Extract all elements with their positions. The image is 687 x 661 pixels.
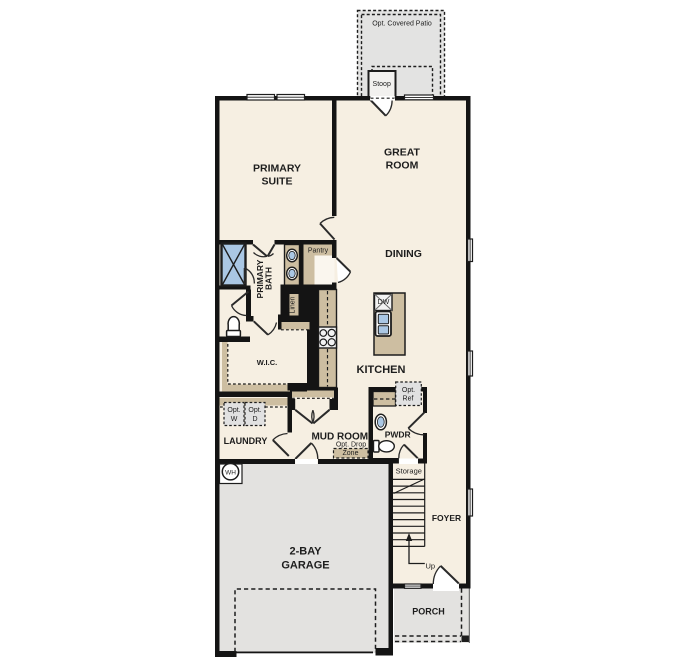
svg-text:SUITE: SUITE bbox=[262, 176, 293, 188]
svg-text:W.I.C.: W.I.C. bbox=[257, 358, 277, 367]
svg-text:GREAT: GREAT bbox=[384, 147, 421, 159]
svg-text:Opt. Covered Patio: Opt. Covered Patio bbox=[372, 20, 432, 27]
svg-text:2-BAY: 2-BAY bbox=[290, 546, 323, 558]
svg-text:KITCHEN: KITCHEN bbox=[357, 364, 406, 376]
svg-text:Zone: Zone bbox=[343, 450, 359, 457]
svg-text:Opt. Drop: Opt. Drop bbox=[336, 441, 366, 448]
svg-text:BATH: BATH bbox=[263, 267, 273, 290]
svg-text:ROOM: ROOM bbox=[386, 160, 419, 172]
svg-text:D: D bbox=[252, 416, 257, 423]
svg-text:PWDR: PWDR bbox=[385, 430, 411, 440]
svg-text:Storage: Storage bbox=[396, 467, 422, 476]
svg-text:FOYER: FOYER bbox=[432, 513, 461, 523]
svg-text:Opt.: Opt. bbox=[227, 407, 240, 414]
svg-text:WH: WH bbox=[225, 470, 236, 477]
svg-text:DW: DW bbox=[378, 299, 390, 306]
svg-text:GARAGE: GARAGE bbox=[281, 560, 329, 572]
svg-text:DINING: DINING bbox=[385, 248, 422, 260]
svg-text:PORCH: PORCH bbox=[412, 607, 445, 617]
svg-text:PRIMARY: PRIMARY bbox=[253, 163, 301, 175]
svg-text:Up: Up bbox=[426, 562, 436, 571]
svg-text:Opt.: Opt. bbox=[402, 387, 415, 394]
svg-text:LAUNDRY: LAUNDRY bbox=[224, 436, 268, 446]
svg-text:Stoop: Stoop bbox=[373, 81, 391, 88]
svg-text:W: W bbox=[231, 416, 238, 423]
svg-text:Opt.: Opt. bbox=[248, 407, 261, 414]
svg-text:Linen: Linen bbox=[290, 296, 297, 313]
svg-text:Ref: Ref bbox=[403, 396, 414, 403]
svg-text:Pantry: Pantry bbox=[308, 247, 329, 254]
